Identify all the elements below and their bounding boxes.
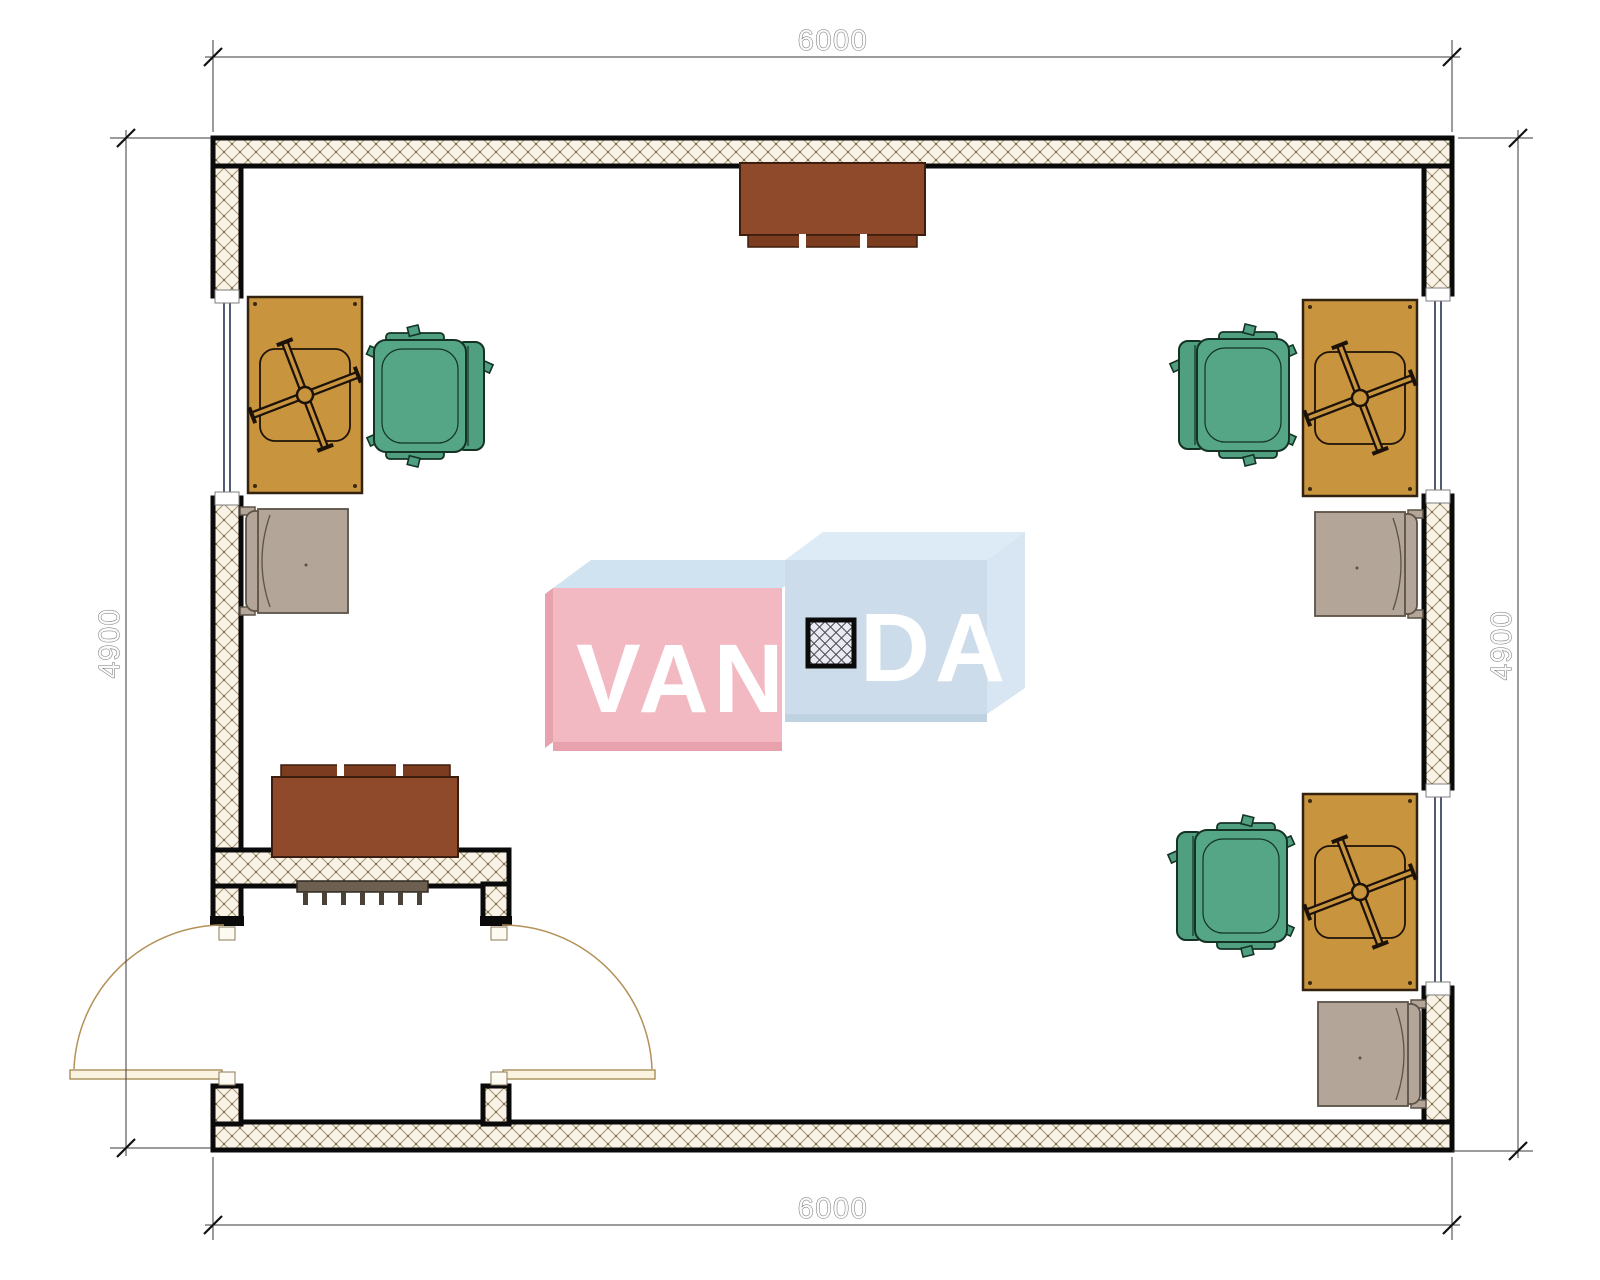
visitor-chair-bottom-right xyxy=(1318,1000,1426,1108)
door-hinge xyxy=(491,927,507,940)
wall-right-middle xyxy=(1424,496,1452,788)
cabinet-bottom-left xyxy=(272,763,458,857)
wall-left-upper xyxy=(213,166,241,296)
desk-bottom-right xyxy=(1299,794,1420,990)
door-stub-left xyxy=(213,1086,241,1124)
window-left xyxy=(215,290,239,505)
floor-plan-page: VAN DA xyxy=(0,0,1600,1280)
window-sill xyxy=(1426,784,1450,797)
wall-bottom xyxy=(213,1122,1452,1150)
dimension-label-top: 6000 xyxy=(798,25,869,57)
dimension-label-left: 4900 xyxy=(94,608,126,679)
radiator xyxy=(297,881,428,905)
office-chair-bottom-right xyxy=(1168,815,1295,957)
window-sill xyxy=(1426,982,1450,995)
dimension-label-right: 4900 xyxy=(1486,610,1518,681)
window-right-lower xyxy=(1426,784,1450,995)
vanda-watermark: VAN DA xyxy=(545,532,1025,751)
visitor-chair-top-right xyxy=(1315,510,1423,618)
dimension-right: 4900 xyxy=(1452,129,1533,1160)
door-hinge xyxy=(219,1072,235,1085)
door-hinge xyxy=(491,1072,507,1085)
wall-right-upper xyxy=(1424,166,1452,294)
door-swing-arc-right xyxy=(502,925,652,1069)
wall-top xyxy=(213,138,1452,166)
window-sill xyxy=(215,492,239,505)
desk-top-left xyxy=(244,297,365,493)
desk-top-right xyxy=(1299,300,1420,496)
floor-plan-drawing: VAN DA xyxy=(0,0,1600,1280)
door-swing-arc-left xyxy=(74,925,224,1069)
structural-column xyxy=(808,620,854,666)
watermark-text-da: DA xyxy=(860,593,1010,702)
window-sill xyxy=(215,290,239,303)
watermark-text-van: VAN xyxy=(576,624,789,733)
office-chair-top-right xyxy=(1170,324,1297,466)
office-chair-top-left xyxy=(366,325,493,467)
dimension-label-bottom: 6000 xyxy=(798,1193,869,1225)
window-sill xyxy=(1426,288,1450,301)
dimension-left: 4900 xyxy=(94,129,211,1157)
dimension-bottom: 6000 xyxy=(204,1157,1461,1240)
door-leaf-right xyxy=(503,1070,655,1079)
window-right-upper xyxy=(1426,288,1450,503)
wall-right-lower xyxy=(1424,988,1452,1122)
visitor-chair-top-left xyxy=(240,507,348,615)
dimension-top: 6000 xyxy=(204,25,1461,132)
door-hinge xyxy=(219,927,235,940)
door-leaf-left xyxy=(70,1070,222,1079)
entry-double-door xyxy=(70,925,655,1085)
door-stub-right xyxy=(483,1086,509,1124)
cabinet-top xyxy=(740,163,925,248)
window-sill xyxy=(1426,490,1450,503)
